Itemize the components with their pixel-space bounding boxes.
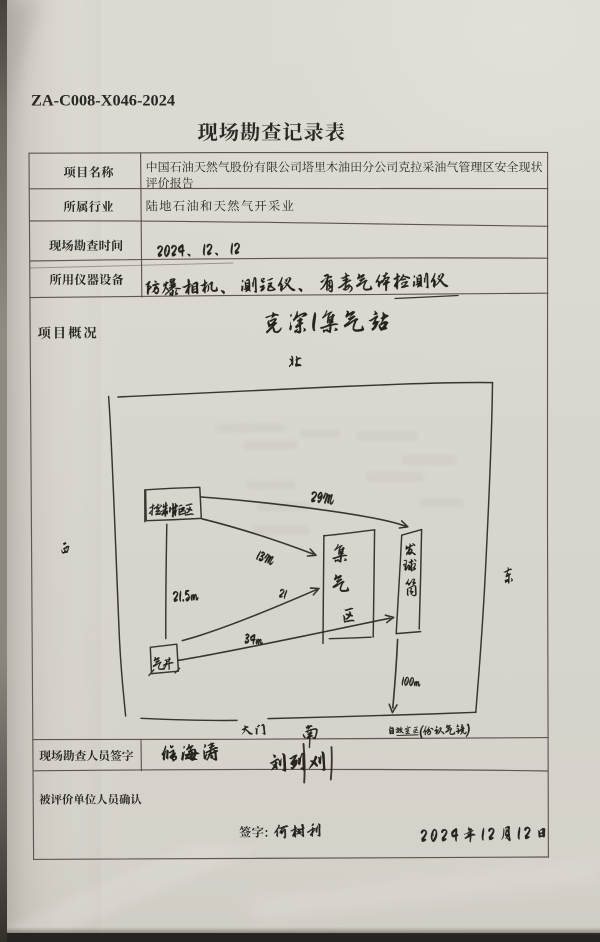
svg-text:ZA-C008-X046-2024: ZA-C008-X046-2024 <box>31 93 175 110</box>
